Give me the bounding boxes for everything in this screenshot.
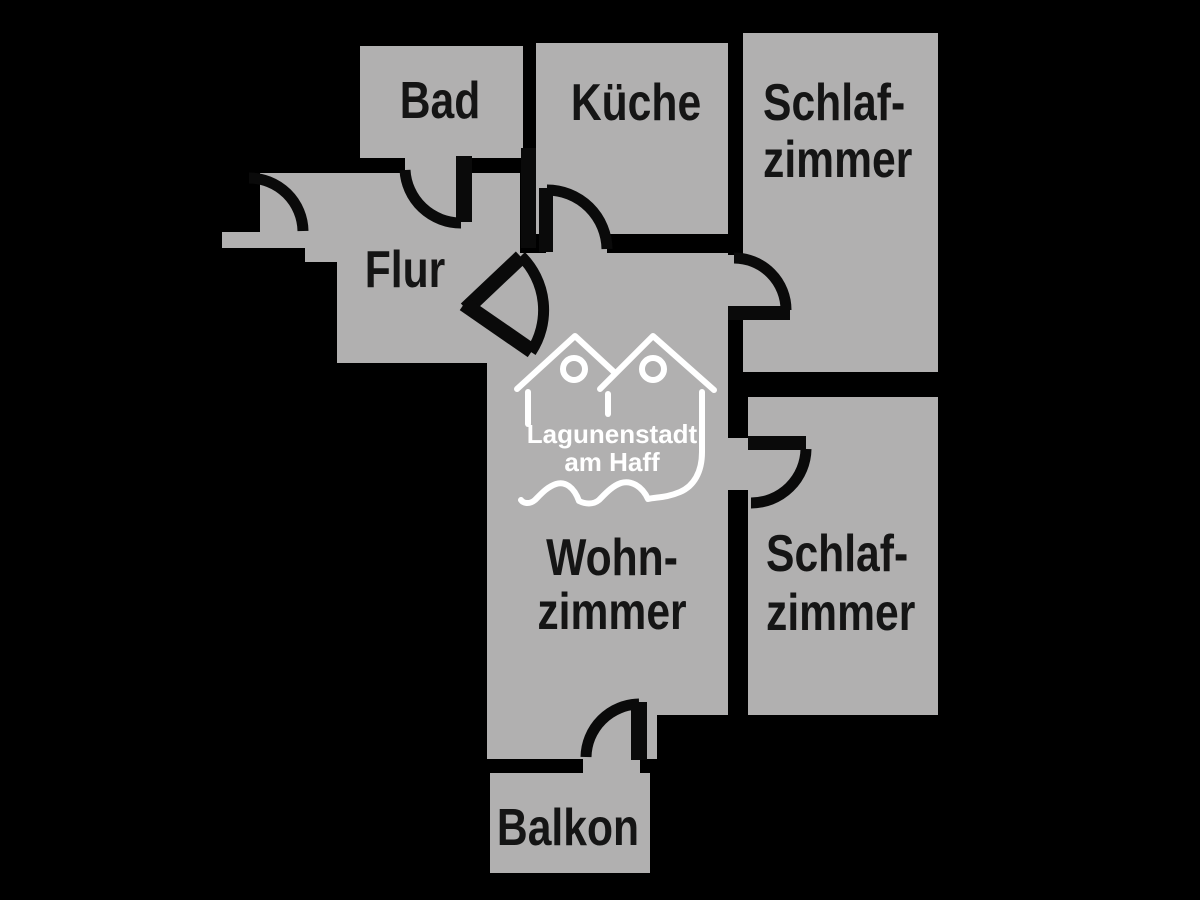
label-schlafzimmer-top-line1: Schlaf- [763, 74, 905, 132]
logo-text-line2: am Haff [564, 447, 660, 477]
door-leaf-bad [456, 156, 472, 222]
floor-plan-image: Bad Küche Schlaf- zimmer Flur Wohn- zimm… [0, 0, 1200, 900]
door-opening-kueche [546, 231, 607, 255]
label-schlafzimmer-bottom-line1: Schlaf- [766, 525, 908, 583]
label-kueche: Küche [571, 74, 701, 132]
label-bad: Bad [400, 72, 481, 130]
door-opening-bad [405, 156, 458, 176]
door-opening-schlafzimmer-bottom [726, 438, 750, 490]
door-leaf-kueche [539, 188, 553, 252]
door-leaf-schlafzimmer-bottom [748, 436, 806, 450]
label-wohnzimmer-line2: zimmer [537, 583, 686, 641]
label-schlafzimmer-bottom-line2: zimmer [766, 584, 915, 642]
label-wohnzimmer-line1: Wohn- [546, 529, 678, 587]
label-balkon: Balkon [497, 799, 639, 857]
label-flur: Flur [365, 241, 446, 299]
room-kueche [536, 43, 728, 234]
wall-stub-kueche-left [521, 148, 536, 248]
label-schlafzimmer-top-line2: zimmer [763, 131, 912, 189]
door-leaf-balkon [631, 702, 647, 760]
floor-plan-svg: Bad Küche Schlaf- zimmer Flur Wohn- zimm… [0, 0, 1200, 900]
logo-text-line1: Lagunenstadt [527, 419, 698, 449]
